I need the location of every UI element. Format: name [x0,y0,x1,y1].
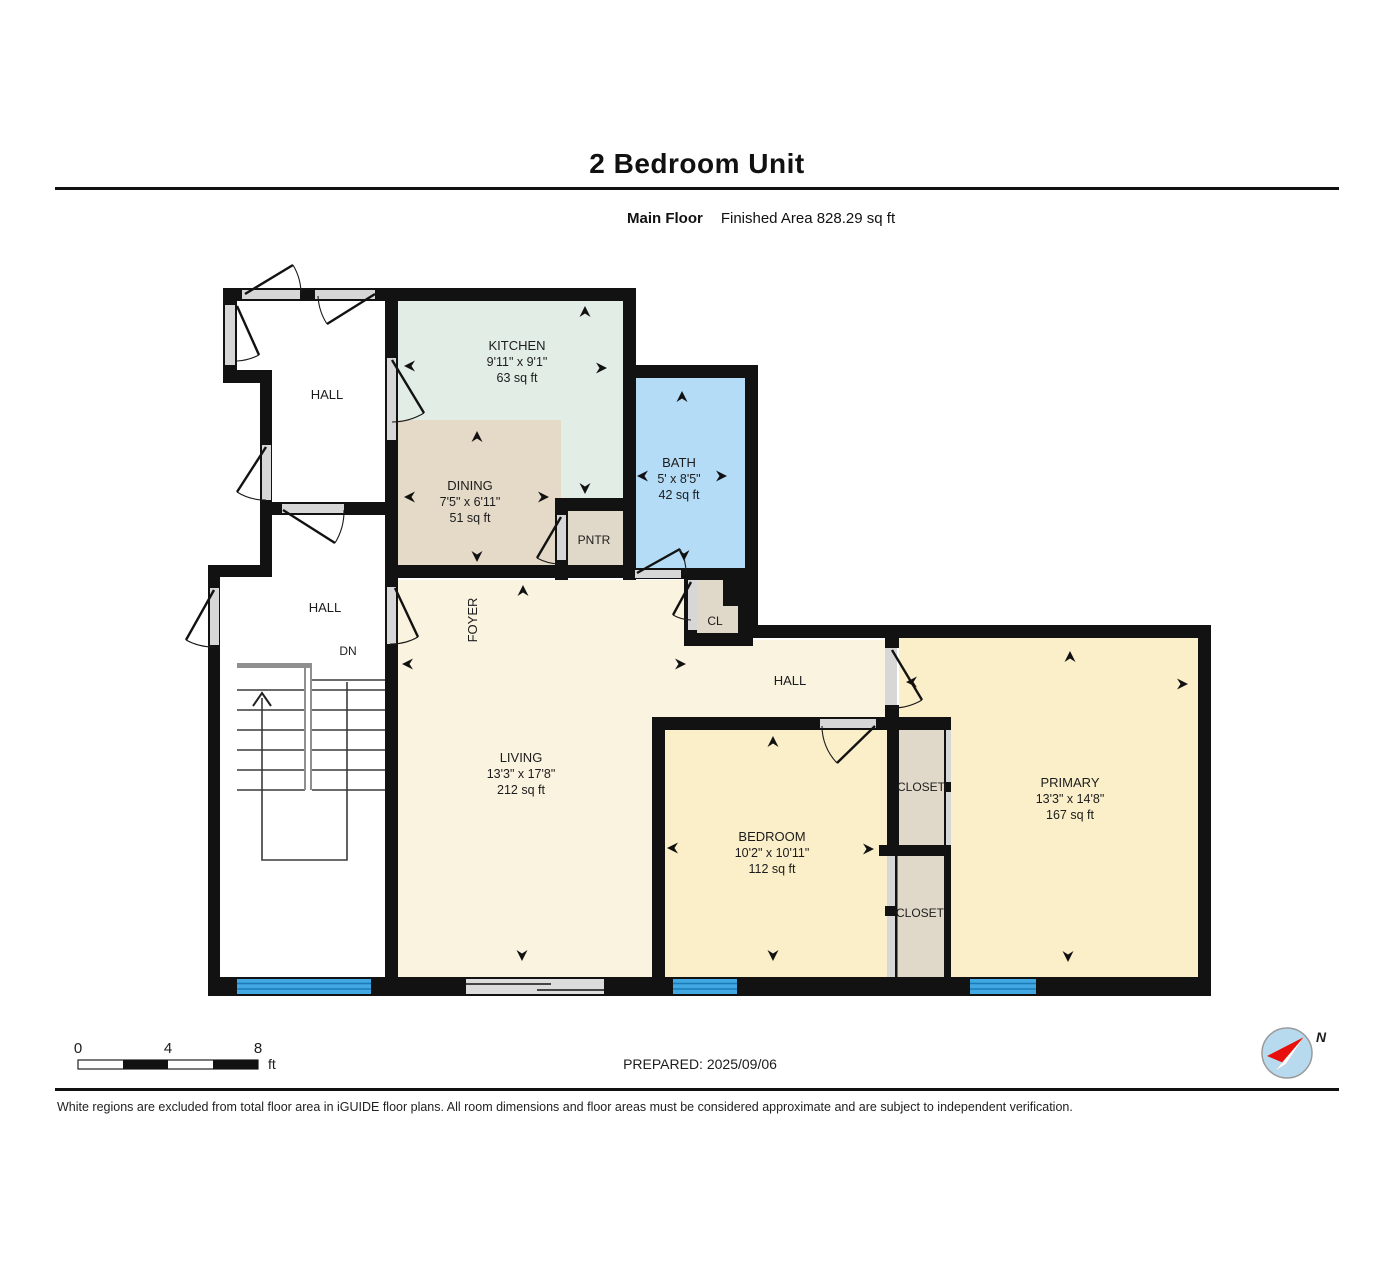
bedroom-area: 112 sq ft [748,862,796,876]
dining-area: 51 sq ft [450,511,492,525]
sliding-door-living [466,979,604,994]
hall-lower-stairs-floor [220,515,385,977]
closet-upper-door-stop [944,782,951,792]
closet-upper-label: CLOSET [897,780,946,794]
window-stairs [237,979,371,994]
living-dims: 13'3" x 17'8" [487,767,556,781]
scale-unit-label: ft [268,1056,276,1072]
dining-dims: 7'5" x 6'11" [440,495,501,509]
disclaimer-text: White regions are excluded from total fl… [57,1100,1357,1114]
kitchen-area: 63 sq ft [497,371,539,385]
window-bedroom [673,979,737,994]
foyer-label: FOYER [465,598,480,643]
compass-icon: N [1262,1028,1327,1078]
pantry-label: PNTR [578,533,611,547]
primary-area: 167 sq ft [1046,808,1094,822]
bedroom-dims: 10'2" x 10'11" [735,846,810,860]
scale-tick-8: 8 [254,1040,262,1057]
dining-name: DINING [447,478,493,493]
bath-dims: 5' x 8'5" [657,472,700,486]
bath-area: 42 sq ft [659,488,701,502]
scale-bar: 0 4 8 ft [74,1040,276,1072]
compass-north-label: N [1316,1029,1327,1045]
living-area: 212 sq ft [497,783,545,797]
bath-name: BATH [662,455,696,470]
kitchen-name: KITCHEN [488,338,545,353]
bedroom-name: BEDROOM [738,829,805,844]
living-name: LIVING [500,750,543,765]
stairs-down-label: DN [339,644,356,658]
scale-tick-0: 0 [74,1040,82,1057]
window-primary [970,979,1036,994]
closet-lower-door-stop [885,906,895,916]
hall-upper-label: HALL [311,387,344,402]
primary-dims: 13'3" x 14'8" [1036,792,1105,806]
hall-lower-label: HALL [309,600,342,615]
primary-name: PRIMARY [1041,775,1100,790]
scale-tick-4: 4 [164,1040,172,1057]
closet-lower-label: CLOSET [896,906,945,920]
bottom-divider-line [55,1088,1339,1091]
closet-cl-label: CL [707,614,723,628]
kitchen-dims: 9'11" x 9'1" [487,355,548,369]
prepared-date: PREPARED: 2025/09/06 [623,1056,777,1072]
hall-inner-label: HALL [774,673,807,688]
